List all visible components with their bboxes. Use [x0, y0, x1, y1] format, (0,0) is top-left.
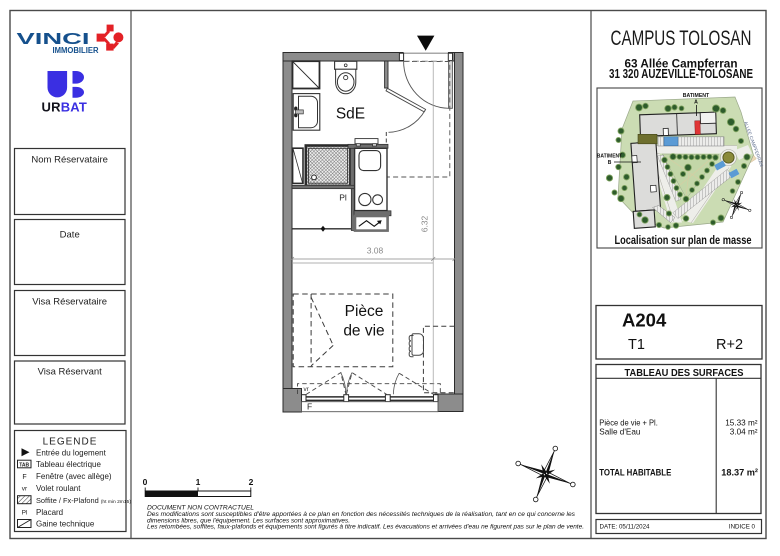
svg-text:A: A: [694, 100, 698, 106]
svg-text:3.04 m²: 3.04 m²: [730, 428, 758, 437]
svg-text:DATE: 05/11/2024: DATE: 05/11/2024: [600, 523, 651, 530]
svg-text:TABLEAU DES SURFACES: TABLEAU DES SURFACES: [625, 368, 744, 379]
svg-text:0: 0: [143, 477, 148, 487]
svg-text:18.37 m²: 18.37 m²: [721, 468, 758, 478]
svg-text:BATIMENT: BATIMENT: [597, 154, 622, 160]
svg-text:Date: Date: [60, 230, 80, 241]
svg-text:Gaine technique: Gaine technique: [36, 520, 95, 529]
svg-text:TOTAL HABITABLE: TOTAL HABITABLE: [599, 468, 671, 478]
svg-text:vr: vr: [22, 486, 28, 493]
svg-text:INDICE 0: INDICE 0: [729, 523, 756, 530]
svg-text:de vie: de vie: [343, 323, 384, 340]
svg-text:15.33 m²: 15.33 m²: [725, 419, 758, 428]
svg-text:Entrée du logement: Entrée du logement: [36, 448, 107, 457]
svg-text:R+2: R+2: [716, 337, 743, 353]
svg-text:Visa Réservataire: Visa Réservataire: [32, 297, 107, 308]
svg-text:SdE: SdE: [336, 106, 365, 123]
svg-text:Pièce de vie + Pl.: Pièce de vie + Pl.: [599, 419, 658, 428]
svg-text:T1: T1: [628, 337, 645, 353]
svg-text:6.32: 6.32: [420, 215, 430, 232]
svg-text:B: B: [608, 160, 612, 166]
svg-text:IMMOBILIER: IMMOBILIER: [53, 46, 99, 55]
svg-text:Pl: Pl: [22, 510, 28, 517]
svg-text:Volet roulant: Volet roulant: [36, 484, 81, 493]
svg-text:31 320 AUZEVILLE-TOLOSANE: 31 320 AUZEVILLE-TOLOSANE: [609, 66, 753, 81]
svg-text:Les retombées, soffites, faux-: Les retombées, soffites, faux-plafonds e…: [147, 524, 584, 531]
svg-text:Tableau électrique: Tableau électrique: [36, 460, 101, 469]
svg-text:LEGENDE: LEGENDE: [43, 437, 98, 448]
svg-text:vr: vr: [304, 386, 309, 393]
svg-text:F: F: [307, 402, 312, 412]
svg-text:TAB: TAB: [19, 462, 29, 468]
svg-text:BATIMENT: BATIMENT: [683, 93, 710, 99]
svg-text:Pl: Pl: [339, 193, 347, 203]
svg-text:Placard: Placard: [36, 508, 63, 517]
svg-text:URBAT: URBAT: [42, 100, 88, 115]
svg-text:Salle d'Eau: Salle d'Eau: [599, 428, 641, 437]
svg-text:Pièce: Pièce: [345, 303, 384, 320]
svg-text:2: 2: [249, 477, 254, 487]
svg-text:3.08: 3.08: [367, 246, 384, 256]
svg-text:A204: A204: [622, 310, 667, 331]
svg-text:Nom Réservataire: Nom Réservataire: [31, 155, 108, 166]
svg-text:Fenêtre (avec allège): Fenêtre (avec allège): [36, 472, 112, 481]
svg-text:1: 1: [196, 477, 201, 487]
svg-text:Localisation sur plan de masse: Localisation sur plan de masse: [615, 233, 752, 247]
svg-text:F: F: [22, 474, 26, 481]
svg-text:Visa Réservant: Visa Réservant: [38, 367, 103, 378]
svg-text:CAMPUS TOLOSAN: CAMPUS TOLOSAN: [611, 26, 752, 50]
